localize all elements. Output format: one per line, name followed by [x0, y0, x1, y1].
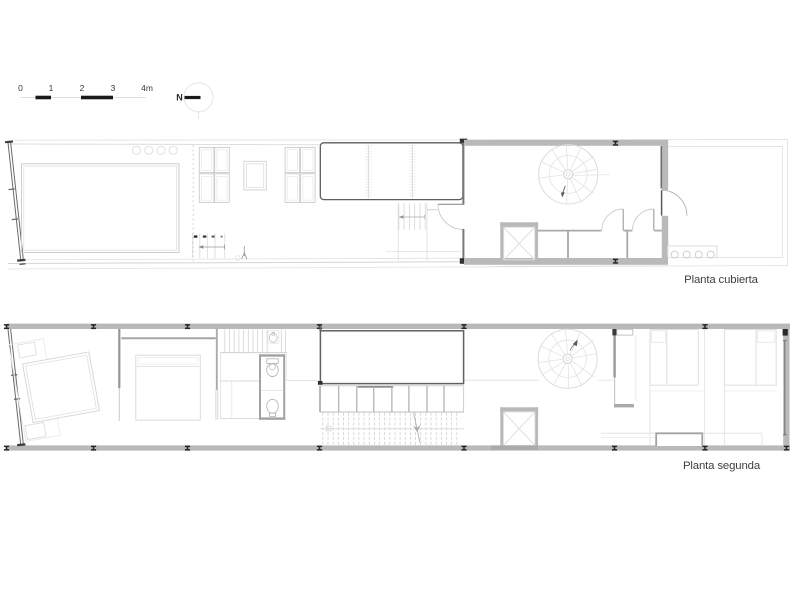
svg-text:3: 3 [111, 83, 116, 93]
svg-text:2: 2 [80, 83, 85, 93]
svg-text:4m: 4m [141, 83, 153, 93]
svg-text:Planta segunda: Planta segunda [683, 460, 761, 472]
svg-text:0: 0 [18, 83, 23, 93]
svg-text:1: 1 [49, 83, 54, 93]
svg-text:Planta cubierta: Planta cubierta [684, 274, 759, 286]
svg-text:N: N [176, 93, 183, 103]
